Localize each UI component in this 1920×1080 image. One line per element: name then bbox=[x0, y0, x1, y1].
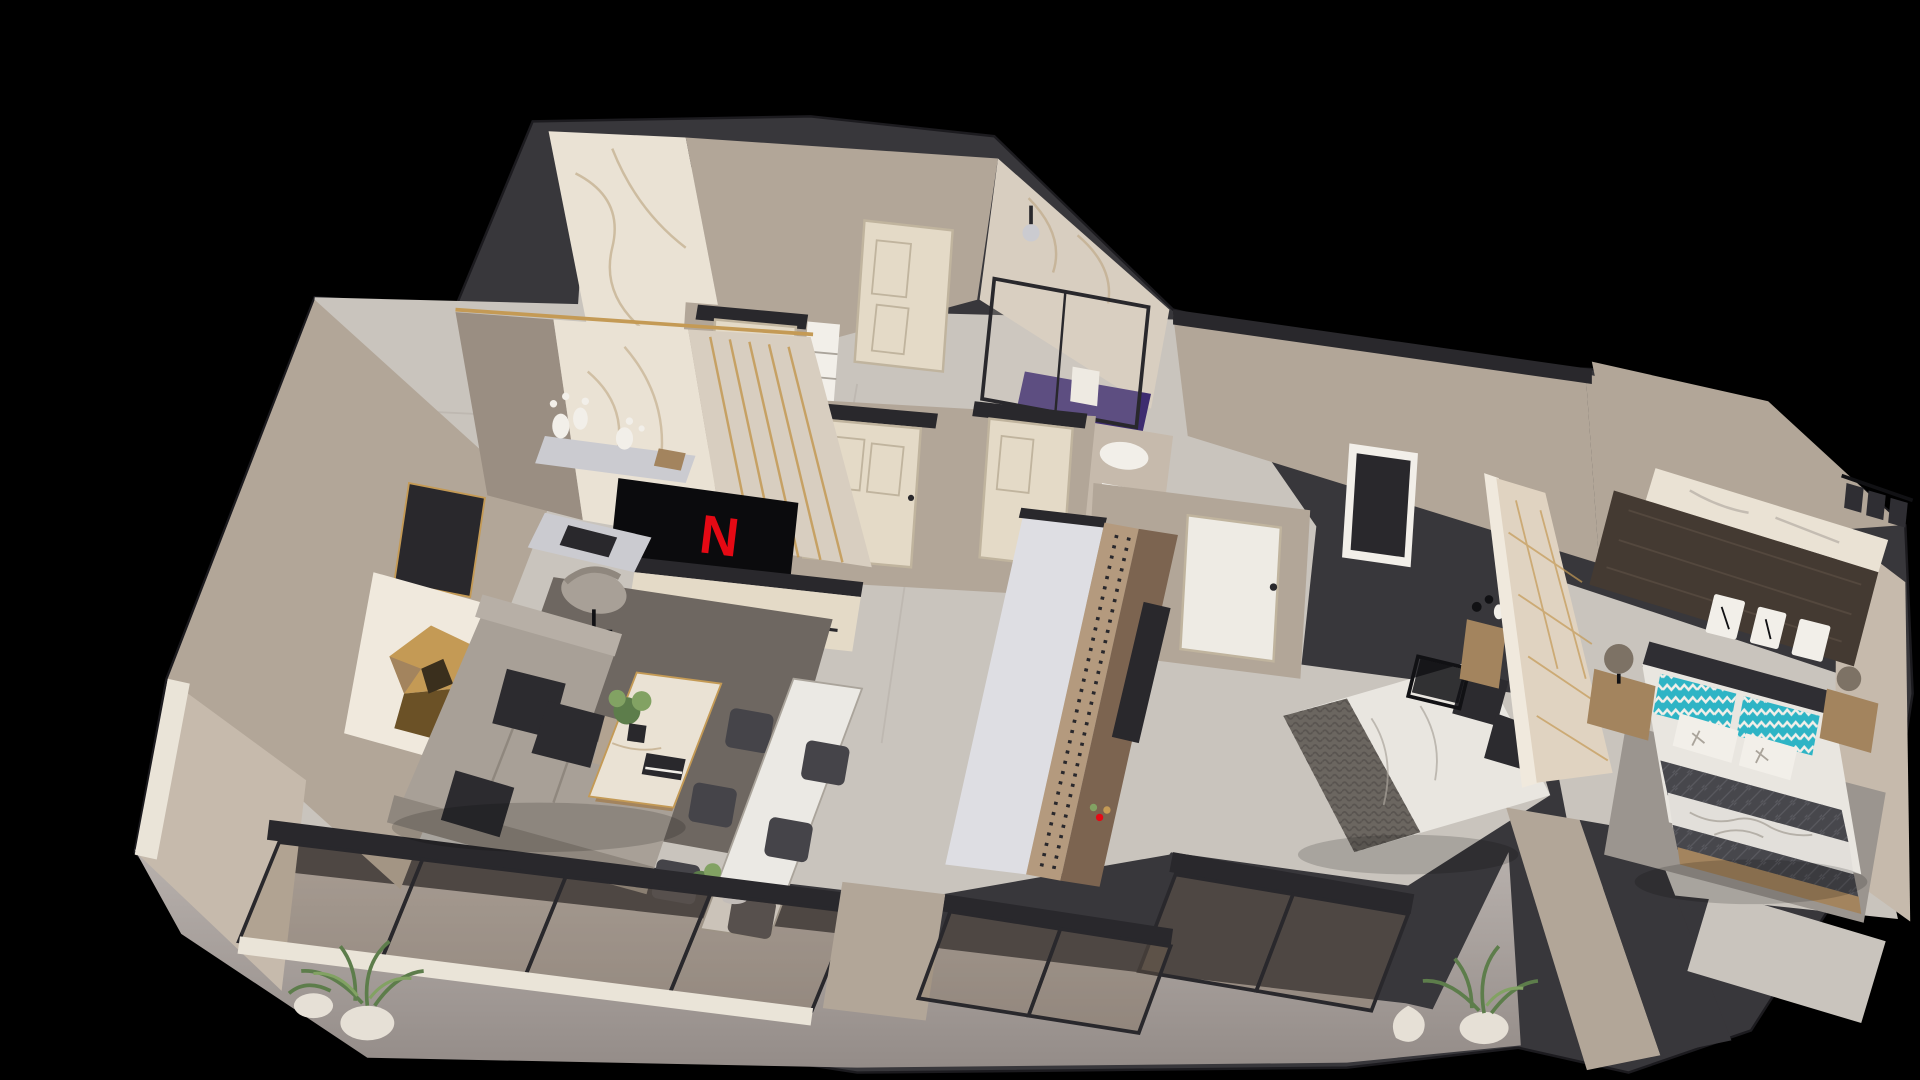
window-slot bbox=[394, 483, 485, 597]
netflix-logo: N bbox=[696, 504, 742, 569]
render-stage: N bbox=[0, 0, 1920, 1080]
floorplan-svg: N bbox=[0, 0, 1920, 1080]
entry-door bbox=[855, 220, 953, 371]
bedroom-window bbox=[1342, 443, 1418, 567]
rain-shower-head bbox=[1022, 224, 1039, 241]
